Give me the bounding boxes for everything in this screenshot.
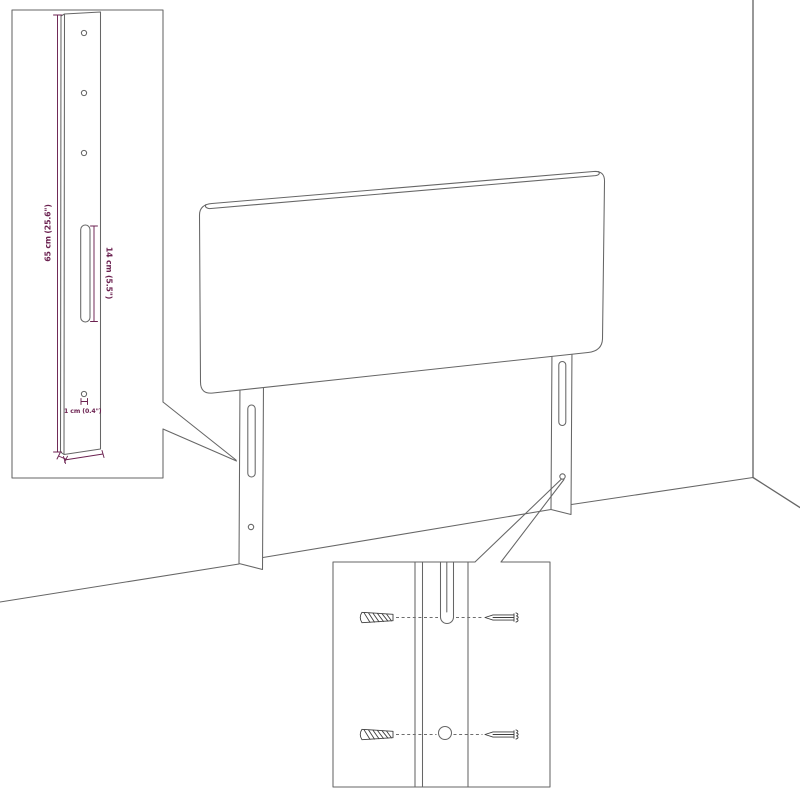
right-leg-outline [551,346,572,515]
left-leg-slot [248,405,255,477]
headboard-panel [200,171,605,393]
left-leg-hole [248,524,253,529]
left-leg [239,381,264,570]
left-leg-outline [239,381,264,570]
detail-box-bottom [333,562,550,787]
label-hole-diameter: 1 cm (0.4") [64,408,102,415]
callout-wedge-left [163,402,237,461]
label-total-height: 65 cm (25.6") [44,204,53,262]
right-leg-hole [560,474,565,479]
diagram-canvas: 65 cm (25.6") 14 cm (5.5") 1 cm (0.4") [0,0,800,800]
label-slot-height: 14 cm (5.5") [105,247,114,299]
right-leg-slot [559,362,566,426]
mounting-detail-inset [333,479,564,787]
headboard-assembly-diagram: 65 cm (25.6") 14 cm (5.5") 1 cm (0.4") [0,0,800,800]
right-leg [551,346,572,515]
right-wall-floor-edge [753,478,800,508]
